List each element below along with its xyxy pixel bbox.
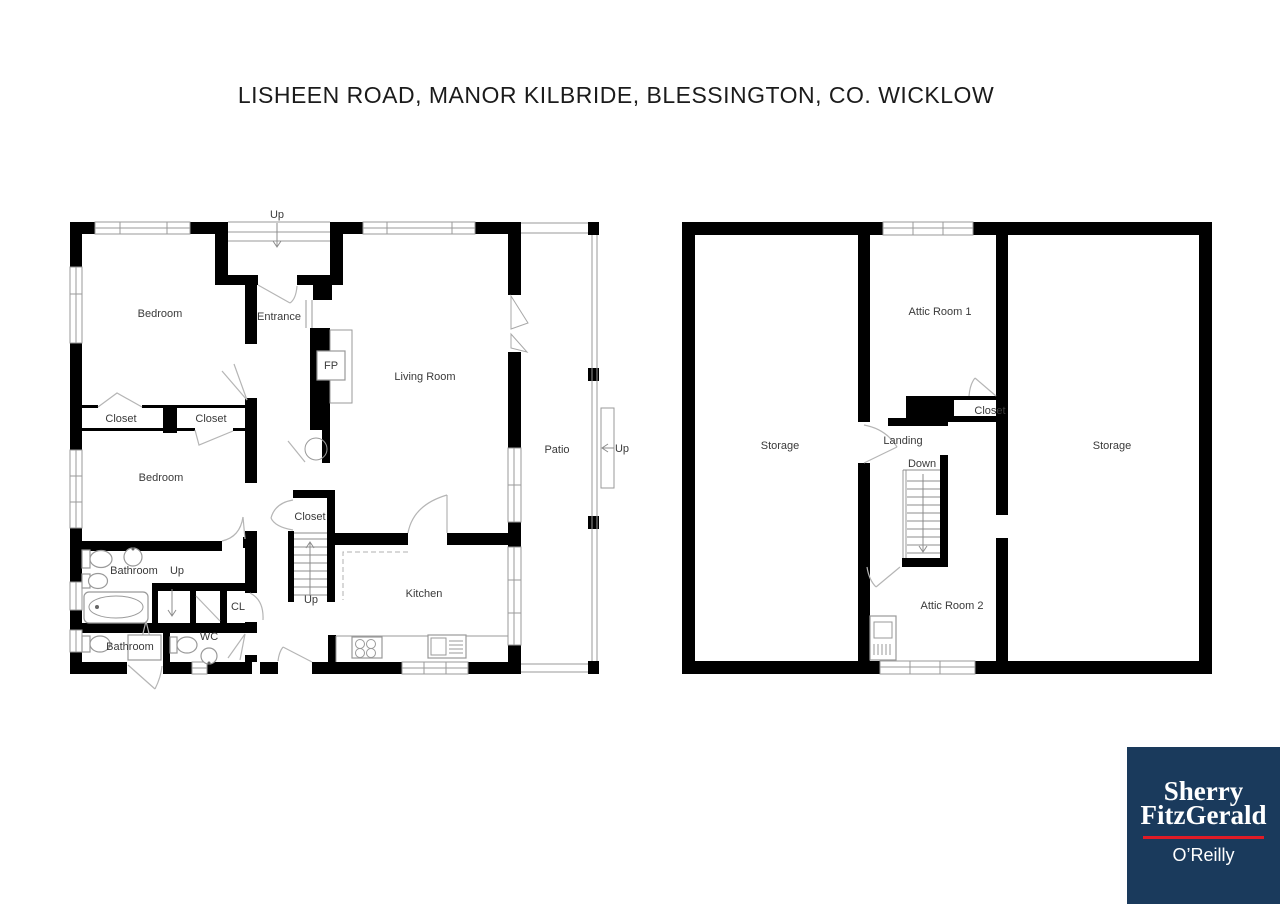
label-attic-room-2: Attic Room 2 [921, 600, 984, 612]
label-patio: Patio [544, 444, 569, 456]
logo-text-fitzgerald: FitzGerald [1141, 803, 1267, 828]
label-closet-3: Closet [294, 511, 325, 523]
label-storage-right: Storage [1093, 440, 1132, 452]
label-kitchen: Kitchen [406, 588, 443, 600]
logo-divider [1143, 836, 1264, 839]
porch-steps [228, 222, 330, 247]
label-up-patio: Up [615, 443, 629, 455]
agency-logo: Sherry FitzGerald O’Reilly [1127, 747, 1280, 904]
logo-text-oreilly: O’Reilly [1172, 845, 1234, 866]
label-down: Down [908, 458, 936, 470]
label-landing: Landing [883, 435, 922, 447]
label-living-room: Living Room [394, 371, 455, 383]
label-bathroom-1: Bathroom [110, 565, 158, 577]
attic-floor-stairs [903, 470, 940, 558]
attic-floor-fixtures [870, 616, 896, 660]
label-storage-left: Storage [761, 440, 800, 452]
label-bathroom-2: Bathroom [106, 641, 154, 653]
label-entrance: Entrance [257, 311, 301, 323]
label-bedroom-1: Bedroom [138, 308, 183, 320]
label-wc: WC [200, 631, 218, 643]
floor-plans-drawing [0, 0, 1280, 904]
label-closet-2: Closet [195, 413, 226, 425]
label-up-porch: Up [270, 209, 284, 221]
label-closet-1: Closet [105, 413, 136, 425]
label-up-bathroom: Up [170, 565, 184, 577]
floorplan-page: LISHEEN ROAD, MANOR KILBRIDE, BLESSINGTO… [0, 0, 1280, 904]
label-fireplace: FP [324, 360, 338, 372]
label-cl: CL [231, 601, 245, 613]
label-bedroom-2: Bedroom [139, 472, 184, 484]
label-up-stairs: Up [304, 594, 318, 606]
label-attic-closet: Closet [974, 405, 1005, 417]
label-attic-room-1: Attic Room 1 [909, 306, 972, 318]
